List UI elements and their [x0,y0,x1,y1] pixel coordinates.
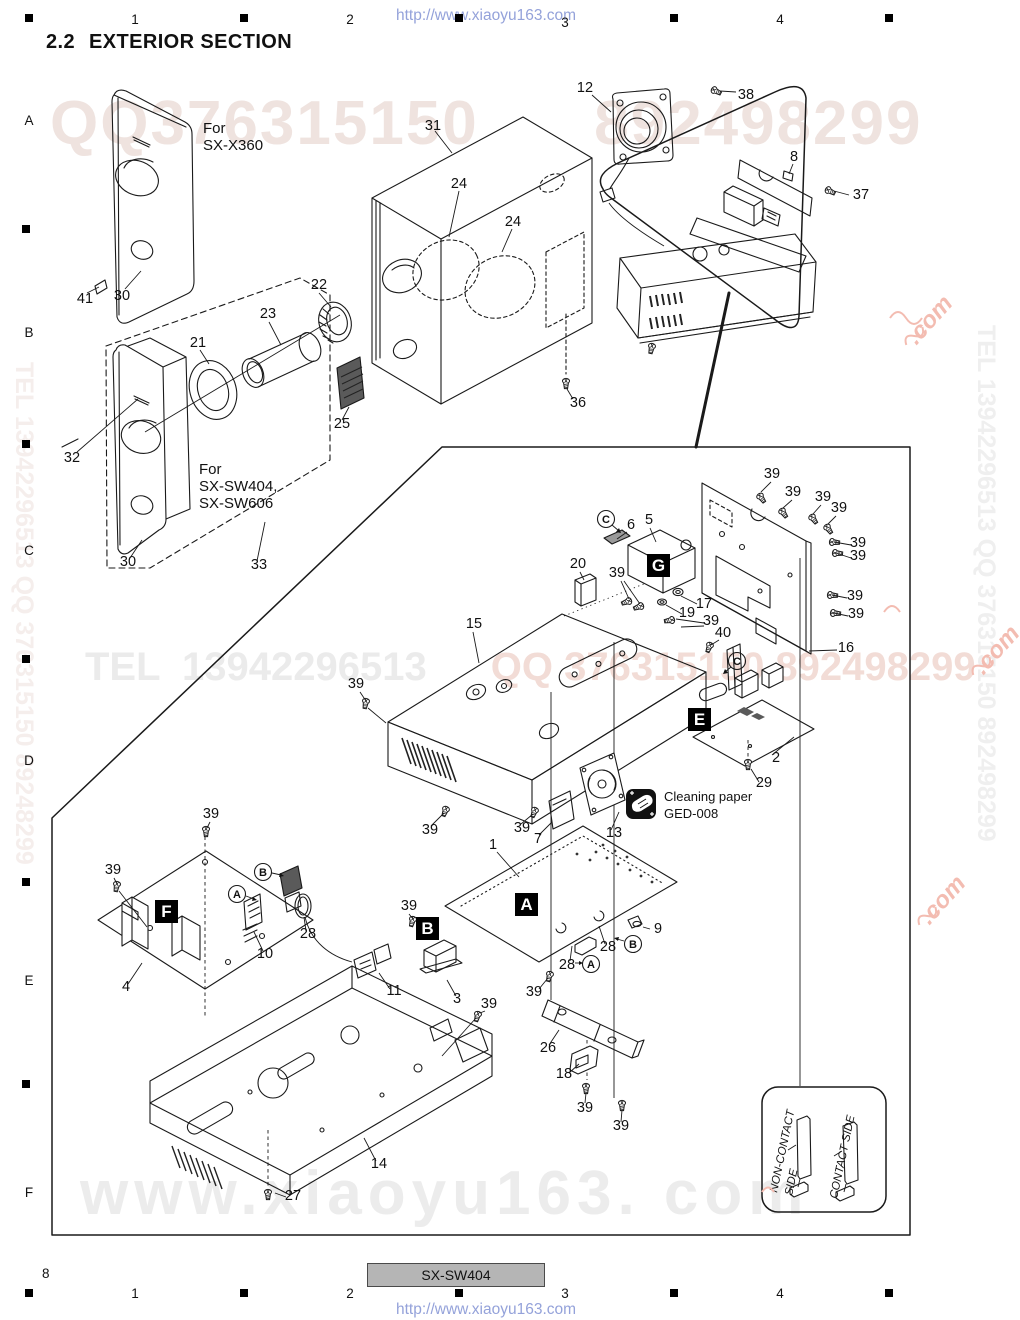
grid-tick-square [22,655,30,663]
note-cleaning-line2: GED-008 [664,806,718,821]
watermark-url-top[interactable]: http://www.xiaoyu163.com [396,7,576,25]
main-board-a [445,296,677,982]
part-label-32: 32 [64,450,80,466]
watermark-pink: .com [914,870,972,930]
grid-tick-square [22,1080,30,1088]
magnified-region-frame [52,293,910,1235]
model-label: SX-SW404 [367,1263,545,1287]
part-label-3: 3 [453,991,461,1007]
grid-tick-square [885,14,893,22]
board-f-area [98,826,417,989]
circle-label-c: C [733,656,741,668]
part-label-30: 30 [114,288,130,304]
port-duct-parts [145,298,364,432]
watermark-pink: .com [901,290,959,350]
note-for-sw-line1: For [199,461,222,478]
grid-col-label: 1 [124,1286,146,1301]
bottom-chassis [150,966,492,1200]
grid-row-label: C [21,543,37,558]
pink-watermark-fragments: .com .com .com [762,290,1020,1192]
part-label-19: 19 [679,605,695,621]
grid-col-label: 2 [339,1286,361,1301]
grid-row-label: E [21,973,37,988]
circle-label-b: B [629,939,637,951]
part-label-24: 24 [505,214,521,230]
grid-col-label: 4 [769,1286,791,1301]
part-label-39: 39 [613,1118,629,1134]
part-label-24: 24 [451,176,467,192]
grid-tick-square [25,14,33,22]
grid-col-label: 2 [339,12,361,27]
part-label-16: 16 [838,640,854,656]
grid-tick-square [670,14,678,22]
grid-row-label: F [21,1185,37,1200]
watermark-url-bottom[interactable]: http://www.xiaoyu163.com [396,1301,576,1319]
grid-tick-square [22,440,30,448]
diagram-notes: For SX-X360 For SX-SW404, SX-SW606 Clean… [199,120,753,821]
grid-tick-square [455,1289,463,1297]
part-label-31: 31 [425,118,441,134]
page-number: 8 [42,1266,50,1281]
cabinet [372,117,592,404]
part-label-39: 39 [348,676,364,692]
part-label-5: 5 [645,512,653,528]
part-label-39: 39 [577,1100,593,1116]
bracket-26 [542,1000,644,1111]
part-label-26: 26 [540,1040,556,1056]
part-label-28: 28 [600,939,616,955]
part-label-4: 4 [122,979,130,995]
part-label-39: 39 [401,898,417,914]
part-label-39: 39 [831,500,847,516]
grid-col-label: 4 [769,12,791,27]
part-label-39: 39 [703,613,719,629]
part-label-39: 39 [105,862,121,878]
part-label-39: 39 [785,484,801,500]
part-label-13: 13 [606,825,622,841]
watermark-pink: .com [968,620,1020,680]
box-label-b: B [421,919,433,938]
box-label-g: G [652,556,665,575]
part-label-41: 41 [77,291,93,307]
part-label-14: 14 [371,1156,387,1172]
part-label-22: 22 [311,277,327,293]
part-label-39: 39 [609,565,625,581]
part-label-9: 9 [654,921,662,937]
part-label-29: 29 [756,775,772,791]
grid-tick-square [670,1289,678,1297]
cleaning-paper-icon [626,789,656,819]
note-cleaning-line1: Cleaning paper [664,789,753,804]
inset-contact-label: CONTACT SIDE [828,1114,857,1200]
box-label-f: F [161,902,171,921]
grid-col-label: 3 [554,1286,576,1301]
box-label-a: A [520,895,532,914]
part-label-20: 20 [570,556,586,572]
grille-panel-sx-x360 [95,90,194,323]
note-for-x360-line1: For [203,120,226,137]
part-label-7: 7 [534,831,542,847]
part-label-25: 25 [334,416,350,432]
note-for-x360-line2: SX-X360 [203,137,263,154]
page-title-number: 2.2 [46,31,75,53]
grid-tick-square [25,1289,33,1297]
board-e-area [693,644,814,770]
part-label-37: 37 [853,187,869,203]
circle-label-b: B [259,867,267,879]
note-for-sw-line2: SX-SW404, [199,478,277,495]
part-label-18: 18 [556,1066,572,1082]
part-callouts: 12 38 31 24 24 8 37 36 41 30 22 23 21 25… [64,80,869,1204]
part-label-39: 39 [422,822,438,838]
grid-col-label: 1 [124,12,146,27]
part-label-2: 2 [772,750,780,766]
part-label-17: 17 [696,596,712,612]
grid-row-label: D [21,753,37,768]
part-label-39: 39 [815,489,831,505]
part-label-39: 39 [847,588,863,604]
grid-tick-square [22,878,30,886]
part-label-11: 11 [386,983,401,999]
circle-label-c: C [602,514,610,526]
grid-row-label: A [21,113,37,128]
part-label-21: 21 [190,335,206,351]
part-label-28: 28 [300,926,316,942]
part-label-39: 39 [481,996,497,1012]
part-label-15: 15 [466,616,482,632]
part-label-23: 23 [260,306,276,322]
rear-panel-assembly [600,87,816,355]
part-label-39: 39 [764,466,780,482]
part-label-10: 10 [257,946,273,962]
note-for-sw-line3: SX-SW606 [199,495,273,512]
part-label-12: 12 [577,80,593,96]
grid-tick-square [240,1289,248,1297]
part-label-1: 1 [489,837,497,853]
exploded-view-diagram: NON-CONTACT SIDE CONTACT SIDE A B E F G … [0,0,1020,1320]
leader-lines [87,91,851,1197]
speaker-driver [600,86,836,246]
page-title: 2.2EXTERIOR SECTION [46,31,292,54]
connector-3 [420,940,482,1022]
section-letter-boxes: A B E F G [155,554,711,940]
circle-label-a: A [587,959,595,971]
part-label-30: 30 [120,554,136,570]
grille-panel-sx-sw404 [62,278,330,568]
part-label-28: 28 [559,957,575,973]
part-label-6: 6 [627,517,635,533]
contact-side-inset: NON-CONTACT SIDE CONTACT SIDE [762,1087,886,1212]
part-label-39: 39 [526,984,542,1000]
part-label-38: 38 [738,87,754,103]
part-label-33: 33 [251,557,267,573]
grid-tick-square [885,1289,893,1297]
grid-col-label: 3 [554,15,576,30]
part-label-39: 39 [514,820,530,836]
box-label-e: E [694,710,705,729]
part-label-36: 36 [570,395,586,411]
part-label-39: 39 [850,548,866,564]
circle-label-a: A [233,889,241,901]
grid-row-label: B [21,325,37,340]
grid-tick-square [22,225,30,233]
part-label-8: 8 [790,149,798,165]
part-label-39: 39 [848,606,864,622]
grid-tick-square [240,14,248,22]
transformer-assembly [575,530,714,653]
part-label-39: 39 [203,806,219,822]
manual-page: QQ376315150 892498299 TEL 13942296513QQ … [0,0,1020,1320]
page-title-text: EXTERIOR SECTION [89,31,292,53]
part-label-27: 27 [285,1188,301,1204]
grid-tick-square [455,14,463,22]
